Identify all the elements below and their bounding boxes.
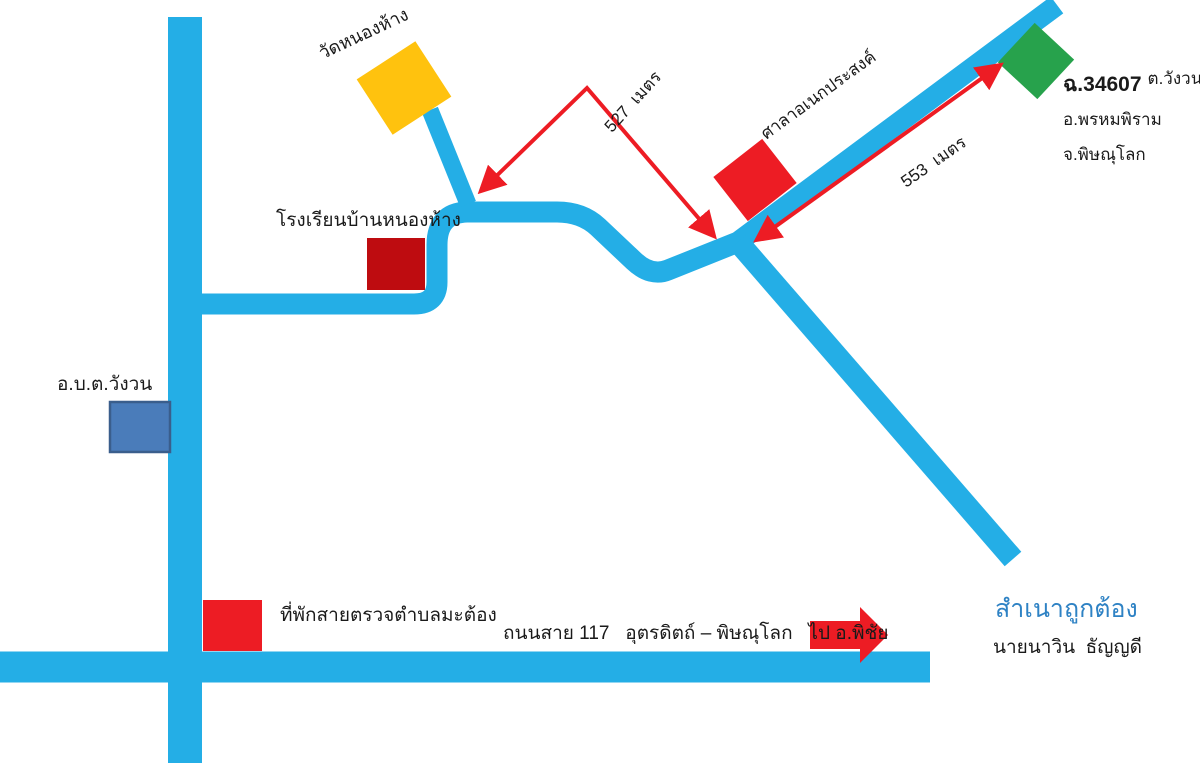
school-label: โรงเรียนบ้านหนองห้าง bbox=[276, 210, 461, 232]
highway-label: ถนนสาย 117 อุตรดิตถ์ – พิษณุโลก ไป อ.พิช… bbox=[503, 623, 889, 645]
sketch-map: วัดหนองห้าง โรงเรียนบ้านหนองห้าง 527 เมต… bbox=[0, 0, 1200, 763]
sao-office-marker bbox=[110, 402, 170, 452]
road-branch-southeast bbox=[738, 242, 1013, 559]
parcel-label: ฉ.34607 ต.วังวน bbox=[1063, 74, 1200, 95]
sao-office-label: อ.บ.ต.วังวน bbox=[57, 374, 152, 396]
road-temple-spur bbox=[430, 110, 468, 204]
parcel-subdistrict: ต.วังวน bbox=[1148, 70, 1200, 87]
police-box-label: ที่พักสายตรวจตำบลมะต้อง bbox=[280, 605, 497, 627]
certified-copy-label: สำเนาถูกต้อง bbox=[995, 595, 1138, 624]
school-marker bbox=[367, 238, 425, 290]
parcel-district: อ.พรหมพิราม bbox=[1063, 110, 1162, 130]
certifier-name: นายนาวิน ธัญญดี bbox=[993, 637, 1142, 659]
police-box-marker bbox=[203, 600, 262, 651]
parcel-province: จ.พิษณุโลก bbox=[1063, 145, 1146, 165]
parcel-number: ฉ.34607 bbox=[1063, 74, 1142, 95]
